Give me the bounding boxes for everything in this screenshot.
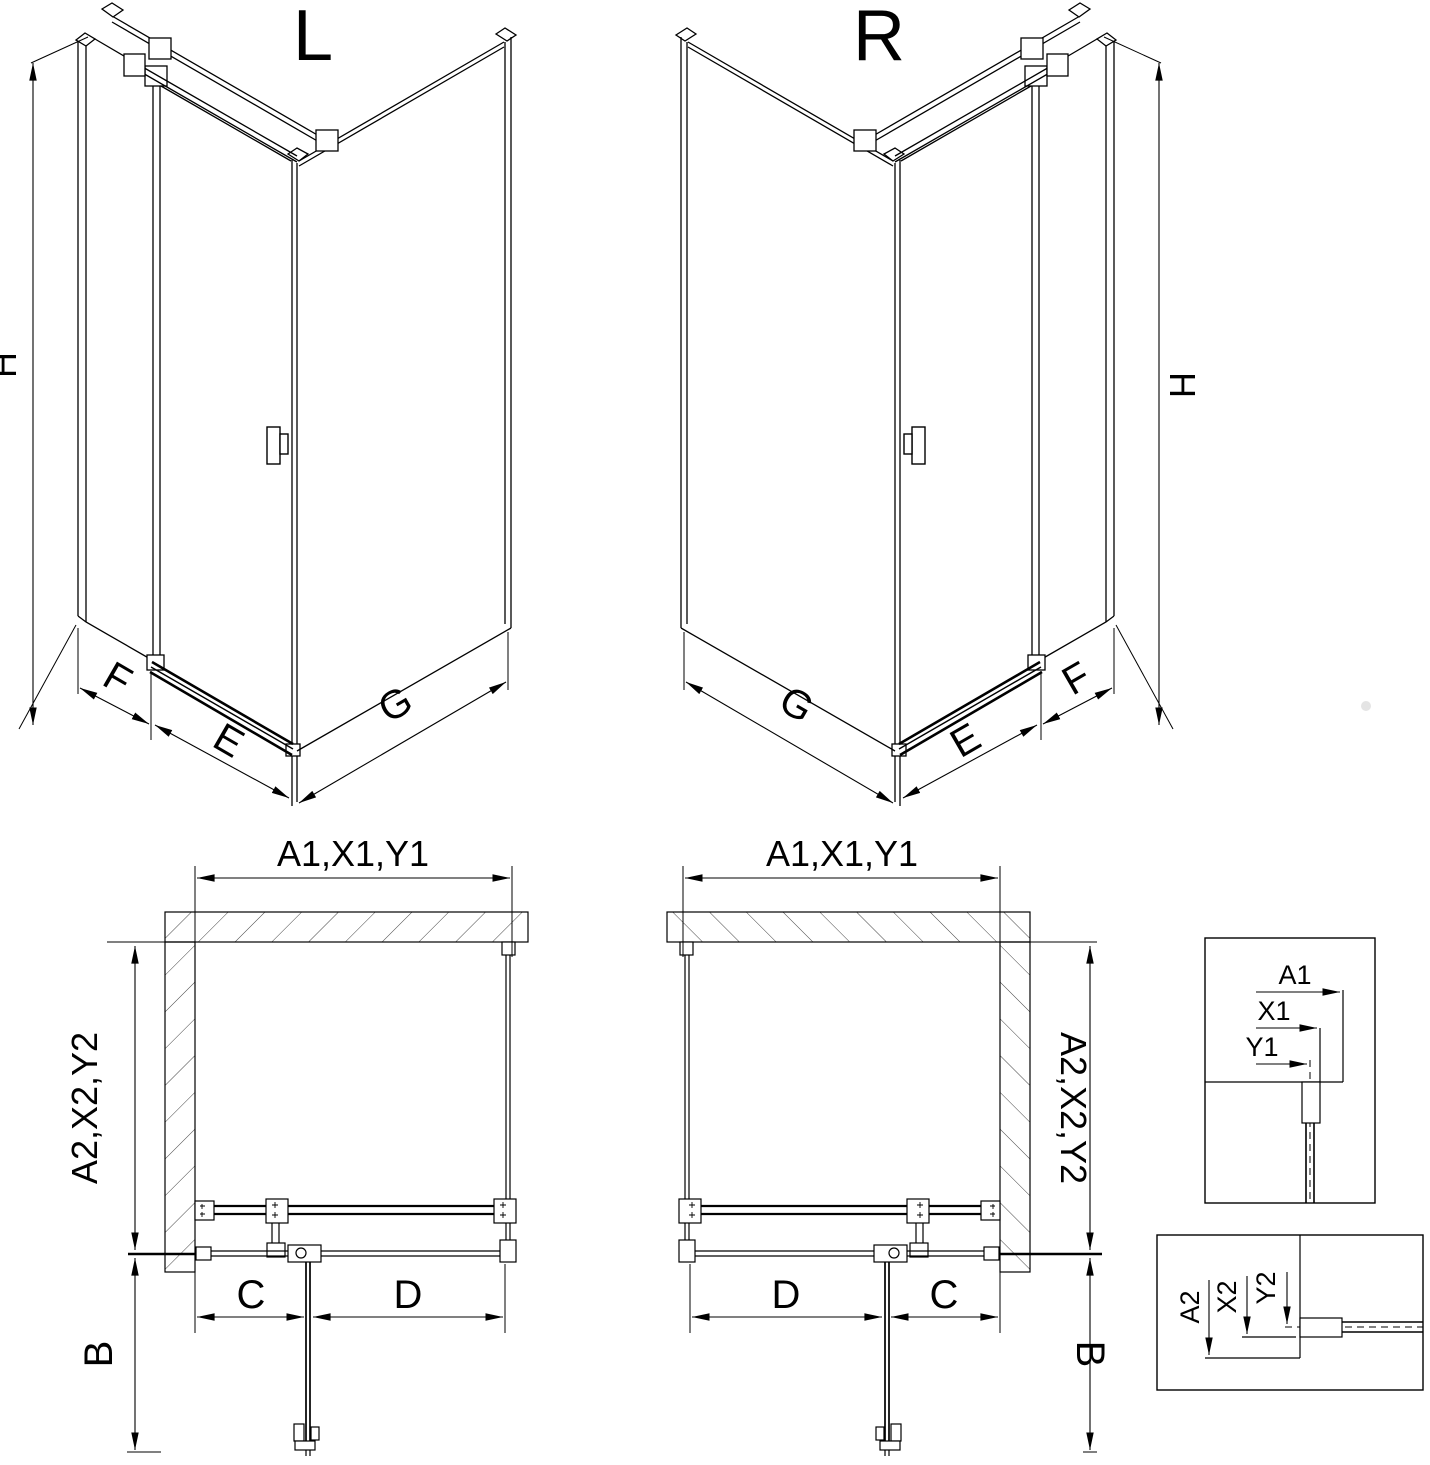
dim-label-f-right: F [1055,654,1098,704]
detail-label-a2: A2 [1175,1290,1205,1323]
detail-box-top: A1 X1 Y1 [1205,938,1375,1203]
dim-label-e-right: E [943,715,988,766]
view-label-right: R [853,0,905,76]
dim-label-h-right: H [1162,372,1203,398]
dim-label-c-right: C [930,1273,959,1317]
detail-label-y2: Y2 [1251,1271,1281,1304]
detail-label-y1: Y1 [1245,1032,1278,1062]
dim-label-a2-right: A2,X2,Y2 [1053,1032,1094,1184]
dim-label-f-left: F [96,654,139,704]
dim-label-d-right: D [772,1273,801,1317]
dim-label-d-left: D [394,1273,423,1317]
dim-label-b-left: B [77,1341,121,1368]
dim-label-b-right: B [1068,1341,1112,1368]
dim-label-g-left: G [371,678,420,732]
dim-label-a1-left: A1,X1,Y1 [277,833,429,874]
plan-view-right: A1,X1,Y1 A2,X2,Y2 B D C [667,833,1112,1456]
iso-view-right: R H F E G [676,0,1203,806]
view-label-left: L [293,0,333,76]
detail-label-x2: X2 [1212,1280,1242,1313]
detail-label-x1: X1 [1257,996,1290,1026]
plan-view-left: A1,X1,Y1 A2,X2,Y2 B C D [64,833,528,1456]
detail-box-bottom: A2 X2 Y2 [1157,1235,1423,1390]
dim-label-c-left: C [237,1273,266,1317]
dim-label-g-right: G [772,678,821,732]
dim-label-e-left: E [206,715,251,766]
stray-dot [1361,701,1371,711]
dim-label-h-left: H [0,352,24,378]
drawing-canvas: L H F E G R H F E G A1,X1,Y1 A2,X2,Y2 B … [0,0,1430,1460]
technical-drawing: L H F E G R H F E G A1,X1,Y1 A2,X2,Y2 B … [0,0,1430,1465]
dim-label-a2-left: A2,X2,Y2 [64,1032,105,1184]
iso-view-left: L H F E G [0,0,516,806]
dim-label-a1-right: A1,X1,Y1 [766,833,918,874]
detail-label-a1: A1 [1278,960,1311,990]
